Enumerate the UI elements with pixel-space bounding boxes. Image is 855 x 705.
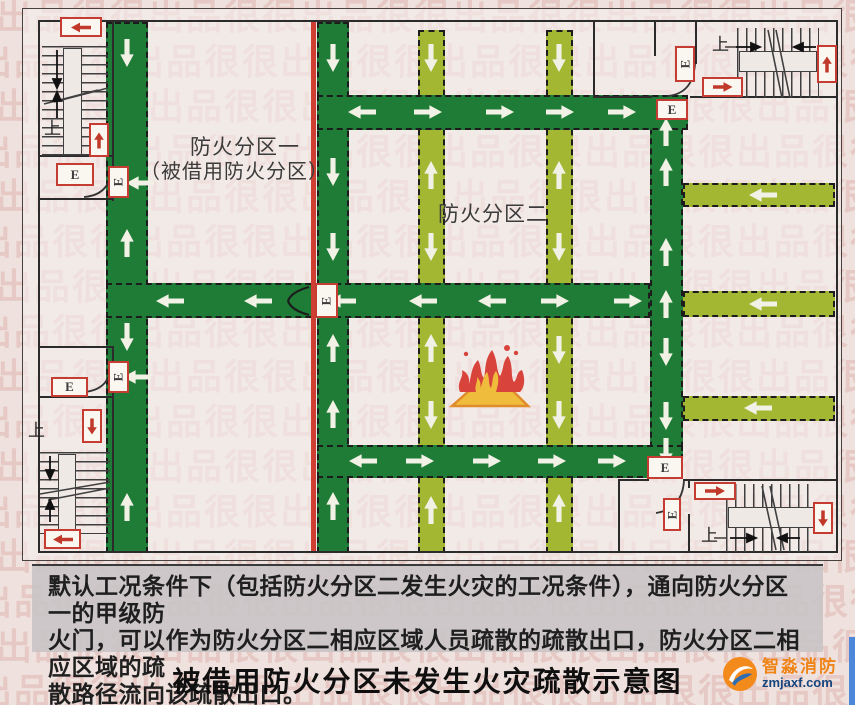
exit-door-sign: E [315,283,338,318]
zone2-label: 防火分区二 [438,198,548,228]
wall-segment [38,346,114,348]
wall-segment [38,198,114,200]
direction-arrow-down [87,418,98,434]
page-edge-sliver [849,637,855,705]
exit-sign: E [663,498,681,531]
direction-arrow-sign [813,502,833,534]
exit-door-sign: E [647,456,683,479]
exit-label: E [110,373,126,382]
wall-segment [695,22,697,64]
direction-arrow-left [71,22,91,33]
exit-label: E [677,60,693,69]
wall-segment [112,392,114,553]
direction-arrow-up [822,56,833,72]
stair-up-label: 上 [44,114,61,139]
exit-label: E [110,178,126,187]
exit-door-sign: E [656,99,688,120]
wall-segment [112,346,114,362]
exit-label: E [664,510,680,519]
stair-up-label: 上 [712,30,729,55]
wall-segment [112,20,114,166]
exit-label: E [668,102,677,118]
direction-arrow-sign [817,45,837,83]
exit-label: E [661,460,670,476]
corridor-middle-horizontal [106,283,650,318]
zone1-label-sub: （被借用防火分区） [122,155,347,184]
wall-segment [593,96,652,98]
exit-door-sign: E [108,166,129,198]
direction-arrow-sign [89,123,109,157]
wall-segment [618,479,620,553]
direction-arrow-sign [82,409,102,443]
wall-segment [654,22,656,56]
wall-segment [688,479,690,488]
direction-arrow-right [713,82,733,93]
direction-arrow-sign [60,17,102,37]
exit-sign: E [675,46,695,82]
stair-up-label: 上 [28,416,45,441]
wall-segment [683,479,838,481]
stair-landing [728,507,814,528]
exit-label: E [318,296,334,305]
exit-label: E [71,167,80,183]
direction-arrow-down [818,510,829,526]
scanned-page: 出品很很出品很很出品很很出品很很出品很很出品很很出品很很出品很很出品很很出品很很… [0,0,855,705]
direction-arrow-sign [694,482,736,500]
stair-landing [58,454,76,532]
brand-domain: zmjaxf.com [762,676,838,690]
direction-arrow-left [53,534,73,545]
exit-label: E [65,379,74,395]
brand-name: 智淼消防 [762,658,838,676]
direction-arrow-up [94,132,105,148]
note-line: 默认工况条件下（包括防火分区二发生火灾的工况条件），通向防火分区一的甲级防 [48,573,807,627]
exit-sign: E [56,163,94,186]
stair-up-label: 上 [701,521,718,546]
brand-logo-icon [722,656,758,692]
direction-arrow-sign [702,77,743,97]
wall-segment [618,479,649,481]
direction-arrow-sign [44,529,81,549]
brand-logo: 智淼消防 zmjaxf.com [722,656,838,692]
stair-landing [739,51,817,72]
wall-segment [593,22,595,98]
note-band: 默认工况条件下（包括防火分区二发生火灾的工况条件），通向防火分区一的甲级防 火门… [32,564,823,652]
stair-landing [63,48,82,155]
wall-segment [688,514,690,553]
exit-sign: E [51,377,88,397]
exit-door-sign: E [108,361,129,393]
direction-arrow-right [705,486,725,497]
